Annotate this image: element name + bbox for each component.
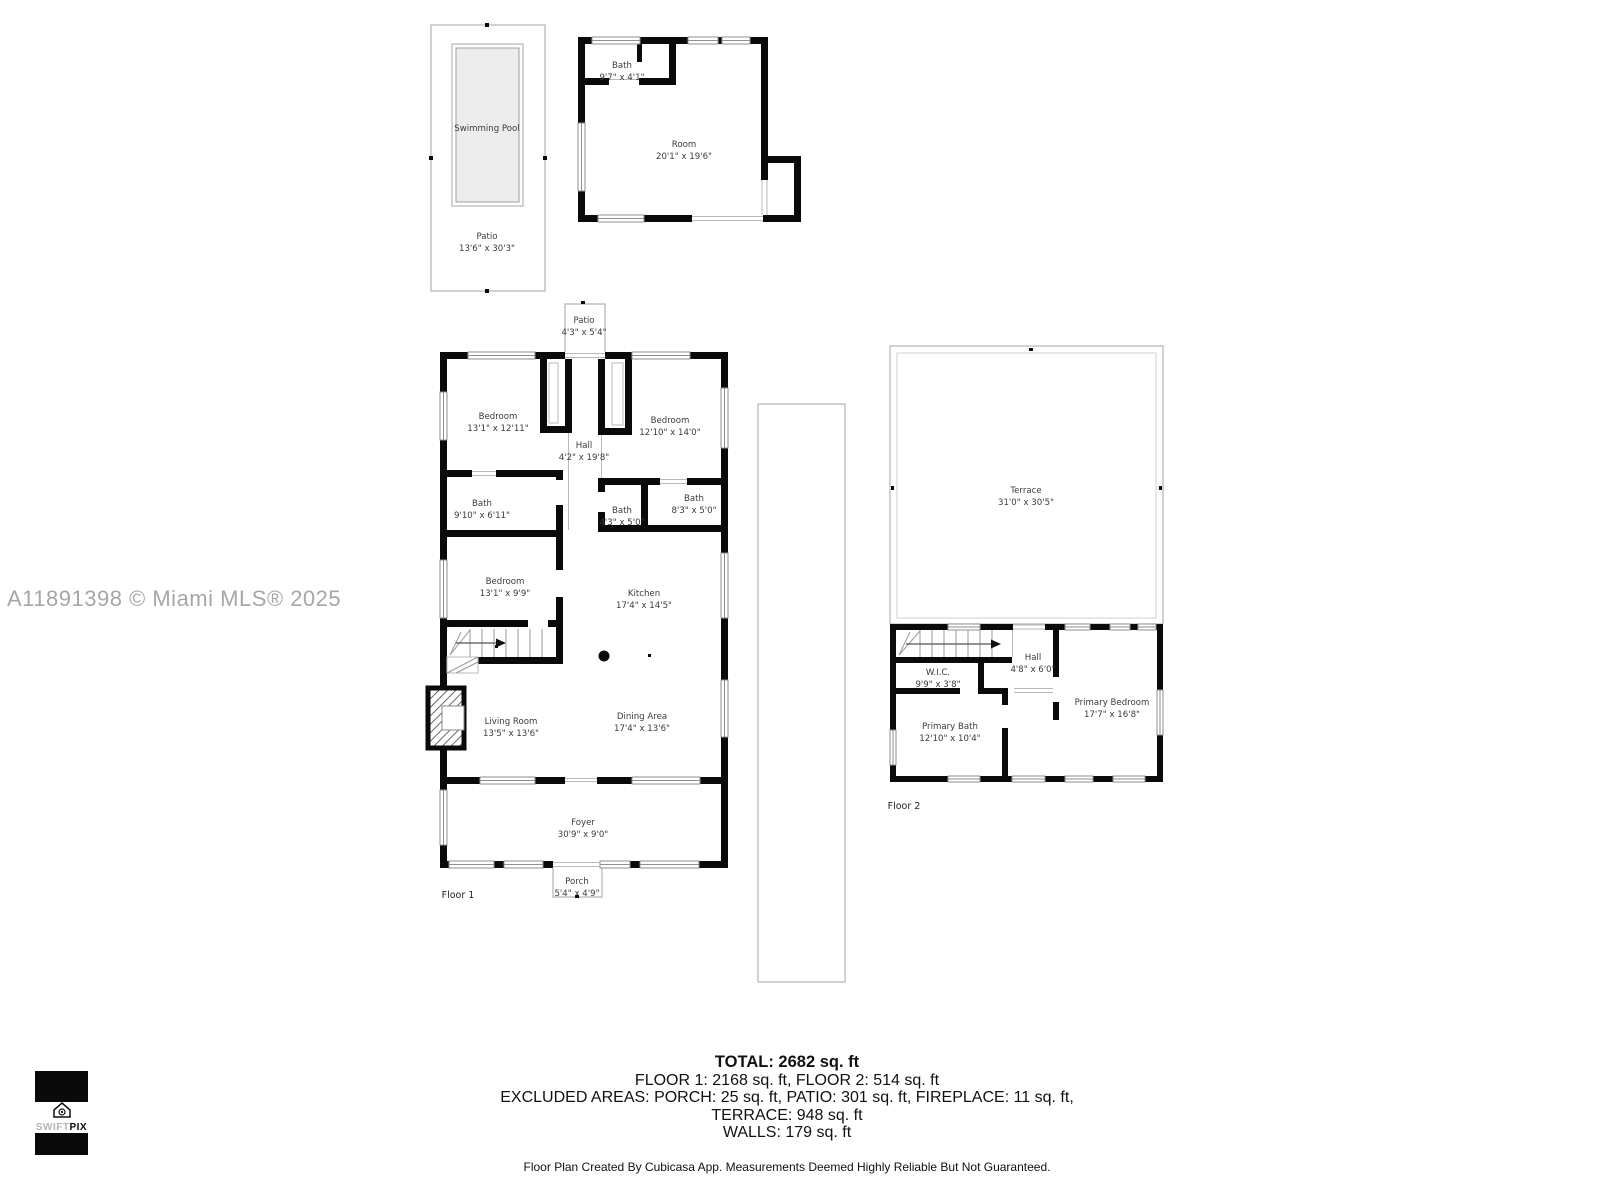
living-room-dims: 13'5" x 13'6": [483, 729, 539, 739]
foyer-label: Foyer: [571, 818, 595, 828]
logo-top-block: [35, 1071, 88, 1102]
logo-pix-text: PIX: [69, 1122, 87, 1133]
bedroom-top-left-dims: 13'1" x 12'11": [467, 424, 529, 434]
pool-patio-area: Swimming Pool Patio 13'6" x 30'3": [429, 23, 547, 293]
logo-wordmark: SWIFTPIX: [35, 1123, 88, 1133]
primary-bedroom-dims: 17'7" x 16'8": [1084, 710, 1140, 720]
logo-swift-text: SWIFT: [36, 1122, 70, 1133]
living-room-label: Living Room: [485, 717, 538, 727]
primary-bath-dims: 12'10" x 10'4": [919, 734, 981, 744]
bedroom-mid-dims: 13'1" x 9'9": [480, 589, 531, 599]
detached-room-openings: [609, 80, 767, 221]
floor1-patio-label: Patio: [573, 316, 594, 326]
floor2-plan: Terrace 31'0" x 30'5" W.I.C. 9'9" x 3'8"…: [888, 346, 1163, 812]
walkway-outline: [758, 404, 845, 982]
swiftpix-logo: SWIFTPIX: [35, 1071, 88, 1155]
floor1-stairs: [447, 629, 542, 673]
foyer-dims: 30'9" x 9'0": [558, 830, 609, 840]
kitchen-dims: 17'4" x 14'5": [616, 601, 672, 611]
porch-dims: 5'4" x 4'9": [554, 889, 599, 899]
floor-plan-drawing: Swimming Pool Patio 13'6" x 30'3": [0, 0, 1600, 1200]
hall-label: Hall: [576, 441, 593, 451]
logo-bottom-block: [35, 1133, 88, 1155]
primary-bath-label: Primary Bath: [922, 722, 978, 732]
patio-area-dims: 13'6" x 30'3": [459, 244, 515, 254]
detached-room-dims: 20'1" x 19'6": [656, 152, 712, 162]
floor2-stairs: [899, 630, 1001, 657]
floor2-hall-dims: 4'8" x 6'0": [1010, 665, 1055, 675]
patio-area-label: Patio: [476, 232, 497, 242]
terrace-dims: 31'0" x 30'5": [998, 498, 1054, 508]
terrace-label: Terrace: [1009, 486, 1041, 496]
detached-bath-dims: 9'7" x 4'1": [599, 73, 644, 83]
bedroom-top-left-label: Bedroom: [479, 412, 518, 422]
pool-label: Swimming Pool: [454, 124, 519, 134]
floor1-labels: Patio 4'3" x 5'4" Bedroom 13'1" x 12'11"…: [442, 316, 717, 901]
bath-center-dims: 4'3" x 5'0": [599, 518, 644, 528]
porch-label: Porch: [565, 877, 589, 887]
detached-bath-label: Bath: [612, 61, 632, 71]
bath-right-label: Bath: [684, 494, 704, 504]
detached-room-label: Room: [672, 140, 696, 150]
floor1-tag: Floor 1: [442, 890, 475, 901]
area-summary: TOTAL: 2682 sq. ft FLOOR 1: 2168 sq. ft,…: [0, 1054, 1574, 1177]
floor1-plan: Patio 4'3" x 5'4" Bedroom 13'1" x 12'11"…: [428, 301, 728, 901]
logo-mid-band: SWIFTPIX: [35, 1102, 88, 1133]
floor-plan-page: A11891398 © Miami MLS® 2025 Swimming Poo…: [0, 0, 1600, 1200]
bedroom-top-right-label: Bedroom: [651, 416, 690, 426]
total-area-line: TOTAL: 2682 sq. ft: [0, 1054, 1574, 1072]
wic-dims: 9'9" x 3'8": [915, 680, 960, 690]
bath-right-dims: 8'3" x 5'0": [671, 506, 716, 516]
floor2-tag: Floor 2: [888, 801, 921, 812]
detached-room-windows: [578, 37, 750, 222]
walls-area-line: WALLS: 179 sq. ft: [0, 1124, 1574, 1142]
dining-area-dims: 17'4" x 13'6": [614, 724, 670, 734]
floor2-labels: Terrace 31'0" x 30'5" W.I.C. 9'9" x 3'8"…: [888, 486, 1150, 812]
house-camera-icon: [53, 1102, 71, 1118]
bedroom-top-right-dims: 12'10" x 14'0": [639, 428, 701, 438]
wic-label: W.I.C.: [926, 668, 950, 678]
bedroom-mid-label: Bedroom: [486, 577, 525, 587]
disclaimer: Floor Plan Created By Cubicasa App. Meas…: [0, 1159, 1574, 1177]
terrace-area-line: TERRACE: 948 sq. ft: [0, 1107, 1574, 1125]
excluded-areas-line: EXCLUDED AREAS: PORCH: 25 sq. ft, PATIO:…: [0, 1089, 1574, 1107]
fireplace: [428, 688, 464, 748]
floor-areas-line: FLOOR 1: 2168 sq. ft, FLOOR 2: 514 sq. f…: [0, 1072, 1574, 1090]
detached-room: Bath 9'7" x 4'1" Room 20'1" x 19'6": [578, 37, 801, 222]
floor1-patio-dims: 4'3" x 5'4": [561, 328, 606, 338]
kitchen-column-dot: [599, 651, 610, 662]
floor2-hall-label: Hall: [1025, 653, 1042, 663]
terrace-outline: [890, 346, 1163, 624]
bath-left-dims: 9'10" x 6'11": [454, 511, 510, 521]
kitchen-label: Kitchen: [628, 589, 660, 599]
dining-area-label: Dining Area: [617, 712, 667, 722]
primary-bedroom-label: Primary Bedroom: [1075, 698, 1150, 708]
hall-dims: 4'2" x 19'8": [559, 453, 610, 463]
bath-left-label: Bath: [472, 499, 492, 509]
bath-center-label: Bath: [612, 506, 632, 516]
